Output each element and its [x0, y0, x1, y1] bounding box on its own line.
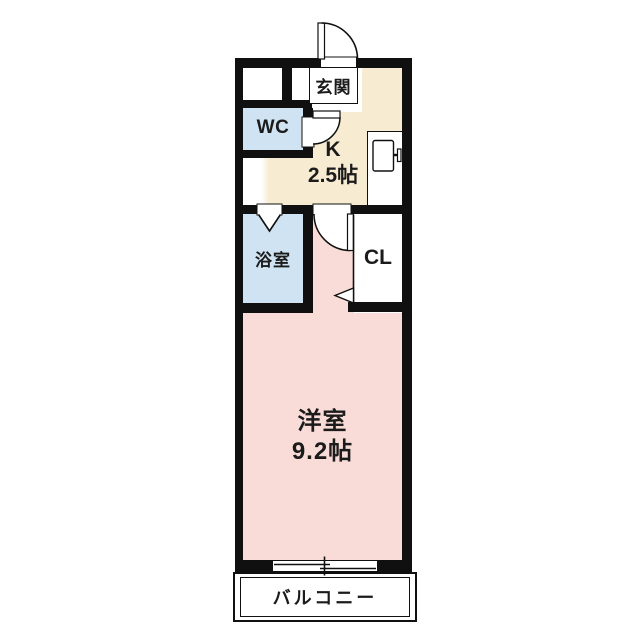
wall-wc-bottom	[235, 150, 303, 158]
wall-bath-bottom	[235, 303, 313, 313]
hallway-floor	[313, 214, 354, 313]
balcony-label: バルコニー	[273, 584, 378, 610]
storage-room	[243, 68, 282, 100]
wall-left	[235, 58, 243, 572]
kitchen-label: K 2.5帖	[294, 136, 372, 190]
wall-bath-right	[303, 214, 313, 313]
sliding-window-band	[273, 560, 377, 572]
kitchen-size-text: 2.5帖	[308, 163, 358, 189]
bath-label-text: 浴室	[255, 246, 291, 271]
wall-right	[402, 58, 412, 572]
western-room-label: 洋室 9.2帖	[243, 313, 402, 560]
balcony-inner: バルコニー	[240, 577, 410, 617]
genkan-label: 玄関	[316, 73, 352, 98]
genkan-label-box: 玄関	[309, 67, 358, 104]
wall-kitchen-bottom	[235, 205, 412, 214]
washer-space	[243, 158, 269, 205]
floor-plan-canvas: バルコニー	[0, 0, 640, 640]
wc-label-text: WC	[257, 117, 290, 139]
closet-label-text: CL	[364, 246, 392, 270]
bath-label: 浴室	[243, 214, 303, 303]
wall-closet-bottom	[348, 302, 412, 312]
western-room-size-text: 9.2帖	[292, 437, 353, 467]
kitchen-label-text: K	[308, 137, 358, 163]
closet-label: CL	[354, 214, 402, 302]
refrigerator-niche	[367, 131, 403, 205]
western-room-label-text: 洋室	[292, 407, 353, 437]
balcony: バルコニー	[233, 572, 417, 622]
